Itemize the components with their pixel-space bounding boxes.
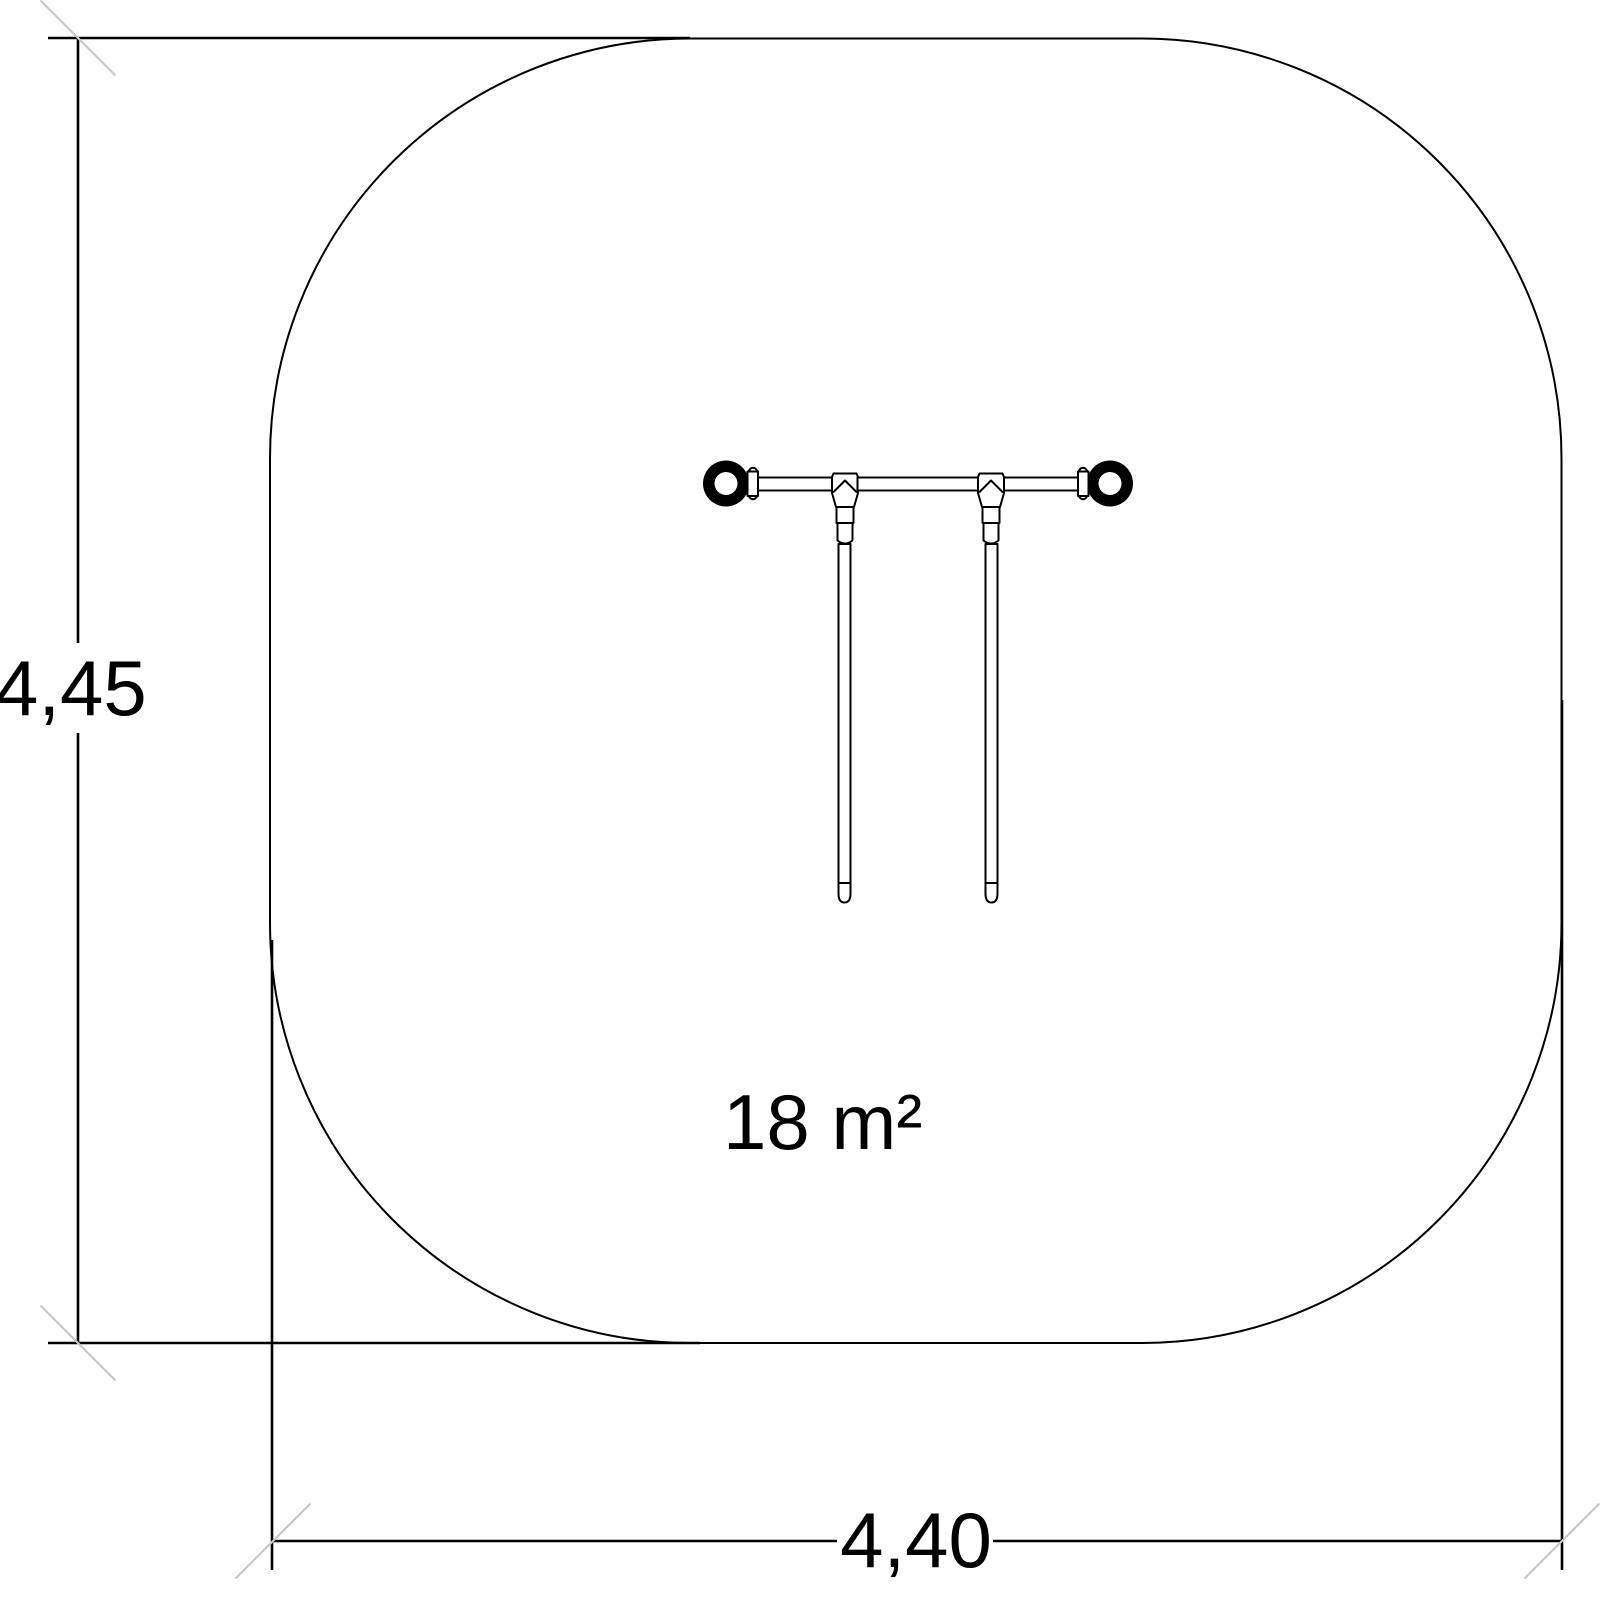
equipment-right-half (858, 461, 1134, 903)
fitting-body (748, 472, 759, 497)
area-label: 18 m² (723, 1082, 922, 1162)
technical-drawing-svg (0, 0, 1600, 1613)
drawing-canvas: 4,45 4,40 18 m² (0, 0, 1600, 1613)
crossbar-outer-segment (758, 478, 833, 491)
height-dimension-label: 4,45 (0, 648, 147, 728)
post-cap (839, 883, 851, 903)
equipment-plan-view (703, 461, 1133, 903)
post-sleeve (838, 523, 853, 544)
frame-ring-inner (715, 472, 738, 495)
post (839, 544, 851, 883)
post-collar (837, 507, 854, 523)
equipment-left-half (703, 461, 979, 903)
width-dimension-label: 4,40 (760, 1500, 1072, 1580)
